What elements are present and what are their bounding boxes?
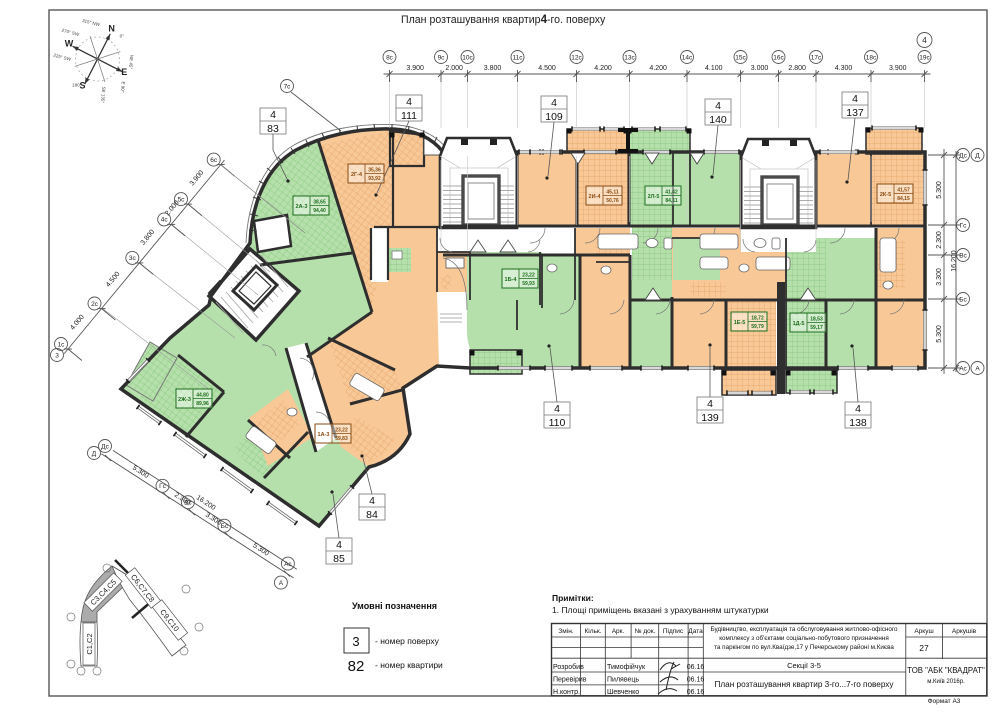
svg-text:1Б-4: 1Б-4: [505, 277, 518, 283]
svg-text:Секції 3-5: Секції 3-5: [787, 661, 821, 670]
svg-text:Д: Д: [92, 450, 97, 457]
svg-text:E 90°: E 90°: [120, 81, 126, 93]
svg-text:59,17: 59,17: [810, 325, 823, 331]
svg-text:84: 84: [366, 509, 378, 521]
svg-text:Дс: Дс: [101, 443, 109, 450]
svg-text:Змін.: Змін.: [558, 627, 573, 635]
svg-text:С1,С2: С1,С2: [85, 633, 94, 654]
svg-text:4: 4: [336, 539, 342, 551]
svg-text:А: А: [975, 365, 980, 372]
svg-text:1Е-5: 1Е-5: [734, 320, 746, 326]
svg-text:2А-3: 2А-3: [296, 204, 308, 210]
svg-text:N: N: [108, 23, 115, 33]
svg-text:83: 83: [267, 123, 279, 135]
svg-text:50,76: 50,76: [606, 198, 619, 204]
svg-text:38,65: 38,65: [313, 200, 326, 206]
svg-text:17c: 17c: [811, 54, 822, 61]
svg-text:06.16: 06.16: [687, 689, 705, 696]
svg-text:1. Площі приміщень вказані з у: 1. Площі приміщень вказані з урахуванням…: [552, 605, 769, 615]
svg-text:0°: 0°: [120, 34, 125, 39]
svg-text:Арк.: Арк.: [612, 628, 625, 635]
svg-text:44,80: 44,80: [196, 393, 209, 399]
svg-text:Перевірив: Перевірив: [553, 676, 587, 684]
svg-text:7c: 7c: [284, 83, 292, 90]
svg-text:2Л-5: 2Л-5: [648, 194, 660, 200]
svg-text:2.000: 2.000: [445, 65, 463, 72]
svg-text:4.300: 4.300: [835, 65, 853, 72]
svg-text:4: 4: [270, 109, 276, 121]
svg-text:93,92: 93,92: [368, 176, 381, 182]
svg-text:2.800: 2.800: [788, 65, 806, 72]
svg-text:4.200: 4.200: [649, 65, 667, 72]
svg-text:Шевченко: Шевченко: [607, 689, 639, 696]
svg-text:1Д-5: 1Д-5: [793, 321, 805, 327]
svg-text:3c: 3c: [129, 255, 137, 262]
svg-text:Розробив: Розробив: [553, 663, 584, 671]
svg-text:3: 3: [55, 352, 59, 359]
svg-text:84,11: 84,11: [665, 198, 677, 204]
svg-text:Вс: Вс: [959, 252, 967, 259]
svg-text:Дата: Дата: [688, 628, 703, 635]
svg-text:12c: 12c: [571, 54, 582, 61]
svg-text:W: W: [65, 39, 74, 49]
svg-text:Гс: Гс: [159, 483, 167, 490]
svg-text:23,22: 23,22: [335, 428, 348, 434]
svg-text:138: 138: [849, 417, 867, 429]
svg-text:4: 4: [852, 93, 858, 105]
svg-text:137: 137: [846, 107, 864, 119]
svg-text:А: А: [279, 580, 284, 587]
svg-text:4: 4: [715, 100, 721, 112]
svg-text:Умовні позначення: Умовні позначення: [352, 601, 437, 611]
svg-text:06.16: 06.16: [687, 664, 705, 671]
svg-text:Вс: Вс: [184, 500, 192, 507]
svg-text:3.300: 3.300: [936, 268, 943, 286]
svg-text:35,36: 35,36: [368, 168, 381, 174]
svg-text:5.300: 5.300: [936, 181, 943, 199]
svg-text:15c: 15c: [735, 54, 746, 61]
svg-text:111: 111: [401, 110, 417, 122]
svg-text:4c: 4c: [161, 217, 169, 224]
svg-text:110: 110: [549, 417, 566, 429]
svg-text:59,79: 59,79: [751, 324, 764, 330]
svg-text:2c: 2c: [91, 301, 99, 308]
svg-text:85: 85: [333, 553, 345, 565]
svg-text:4: 4: [369, 495, 375, 507]
svg-text:89,96: 89,96: [196, 401, 209, 407]
svg-text:11c: 11c: [513, 54, 524, 61]
svg-text:41,42: 41,42: [665, 190, 678, 196]
svg-text:84,15: 84,15: [897, 196, 910, 202]
svg-text:4.100: 4.100: [705, 65, 723, 72]
svg-text:Ас: Ас: [959, 365, 967, 372]
svg-text:5c: 5c: [178, 197, 186, 204]
svg-text:180°: 180°: [72, 83, 82, 88]
svg-text:Кільк.: Кільк.: [584, 627, 601, 635]
svg-text:45,11: 45,11: [606, 190, 618, 196]
svg-text:План розташування квартир4-го.: План розташування квартир4-го. поверху: [401, 13, 606, 26]
svg-text:109: 109: [545, 111, 563, 123]
svg-text:Бс: Бс: [221, 523, 229, 530]
svg-text:Пилявець: Пилявець: [607, 677, 639, 684]
svg-text:59,93: 59,93: [522, 281, 535, 287]
svg-text:2Ж-3: 2Ж-3: [178, 397, 191, 403]
svg-text:2К-5: 2К-5: [880, 192, 891, 198]
svg-text:Гс: Гс: [960, 222, 968, 229]
svg-text:2.300: 2.300: [936, 231, 943, 249]
svg-text:Бс: Бс: [959, 296, 967, 303]
svg-text:5.300: 5.300: [936, 325, 943, 343]
svg-text:2Г-4: 2Г-4: [351, 172, 363, 178]
svg-text:- номер поверху: - номер поверху: [375, 636, 440, 646]
svg-text:3.800: 3.800: [484, 65, 502, 72]
svg-text:Будівництво, експлуатація та о: Будівництво, експлуатація та обслуговува…: [710, 625, 898, 633]
svg-text:4: 4: [406, 96, 412, 108]
svg-text:94,40: 94,40: [313, 208, 326, 214]
svg-text:Аркушів: Аркушів: [952, 627, 977, 635]
svg-text:14c: 14c: [682, 54, 693, 61]
svg-text:82: 82: [348, 658, 365, 675]
svg-text:Д: Д: [975, 152, 980, 159]
svg-text:4: 4: [922, 36, 927, 45]
svg-text:Формат А3: Формат А3: [928, 698, 961, 705]
svg-text:59,83: 59,83: [335, 436, 348, 442]
svg-text:комплексу з об'єктами соціальн: комплексу з об'єктами соціально-побутово…: [719, 634, 889, 642]
svg-text:2И-4: 2И-4: [589, 194, 602, 200]
svg-text:- номер квартири: - номер квартири: [375, 660, 443, 670]
svg-text:140: 140: [709, 114, 727, 126]
svg-text:4: 4: [551, 97, 557, 109]
svg-text:3: 3: [352, 634, 359, 649]
svg-text:Тимофійчук: Тимофійчук: [607, 663, 646, 671]
svg-text:Аркуш: Аркуш: [914, 628, 933, 635]
svg-text:27: 27: [919, 643, 929, 653]
svg-text:Ас: Ас: [284, 561, 292, 568]
svg-text:18,72: 18,72: [751, 316, 764, 322]
svg-text:16c: 16c: [773, 54, 784, 61]
svg-text:та паркінгом по вул.Кваїдзе,17: та паркінгом по вул.Кваїдзе,17 у Печерсь…: [714, 643, 894, 651]
svg-text:План розташування квартир 3-го: План розташування квартир 3-го...7-го по…: [715, 680, 895, 689]
svg-text:4: 4: [707, 398, 713, 410]
svg-text:Дс: Дс: [959, 152, 967, 159]
svg-text:18c: 18c: [866, 54, 877, 61]
svg-text:Примітки:: Примітки:: [552, 593, 594, 603]
svg-text:3.900: 3.900: [406, 65, 424, 72]
svg-text:ТОВ "АБК "КВАДРАТ": ТОВ "АБК "КВАДРАТ": [907, 666, 985, 675]
svg-text:1c: 1c: [58, 341, 66, 348]
svg-text:1А-3: 1А-3: [318, 432, 330, 438]
svg-text:Підпис: Підпис: [663, 627, 684, 635]
svg-text:9c: 9c: [438, 54, 446, 61]
svg-text:8c: 8c: [386, 54, 394, 61]
svg-text:4.200: 4.200: [594, 65, 612, 72]
svg-text:23,22: 23,22: [522, 273, 535, 279]
svg-text:06.16: 06.16: [687, 677, 705, 684]
svg-text:3.900: 3.900: [889, 65, 907, 72]
svg-text:13c: 13c: [624, 54, 635, 61]
svg-text:19c: 19c: [919, 54, 930, 61]
svg-text:№ док.: № док.: [635, 628, 656, 635]
svg-text:41,57: 41,57: [897, 188, 910, 194]
svg-text:м.Київ 2016р.: м.Київ 2016р.: [927, 679, 965, 685]
svg-text:4: 4: [554, 403, 560, 415]
svg-text:4: 4: [855, 403, 861, 415]
svg-text:3.000: 3.000: [751, 65, 769, 72]
svg-text:10c: 10c: [462, 54, 473, 61]
svg-text:18,53: 18,53: [810, 317, 823, 323]
svg-text:139: 139: [701, 412, 719, 424]
svg-text:6c: 6c: [210, 157, 218, 164]
svg-text:Н.контр.: Н.контр.: [553, 689, 580, 696]
svg-text:4.500: 4.500: [538, 65, 556, 72]
